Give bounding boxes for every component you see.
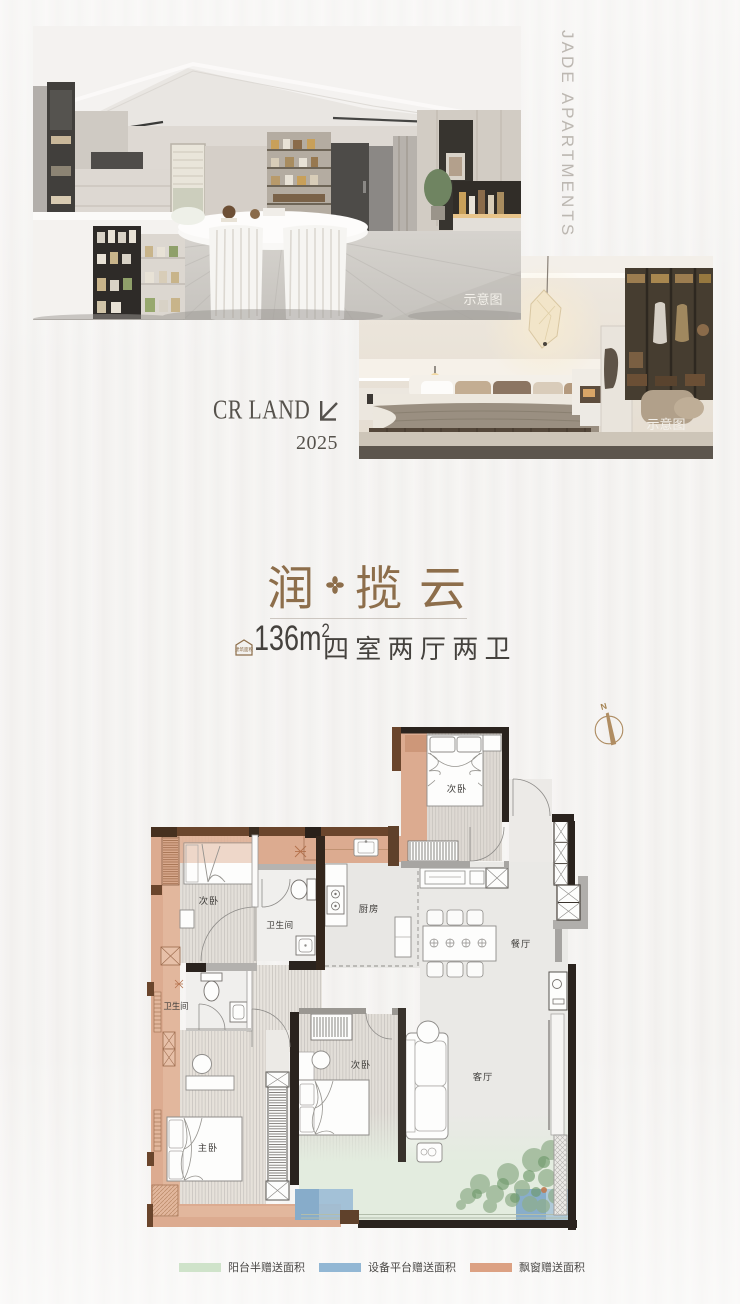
svg-text:客厅: 客厅: [473, 1071, 494, 1082]
svg-text:主卧: 主卧: [198, 1142, 219, 1153]
svg-text:次卧: 次卧: [447, 783, 468, 794]
svg-text:次卧: 次卧: [199, 895, 220, 906]
svg-text:厨房: 厨房: [359, 903, 380, 914]
svg-text:卫生间: 卫生间: [164, 1001, 189, 1011]
svg-text:N: N: [599, 701, 608, 712]
svg-text:卫生间: 卫生间: [266, 919, 293, 930]
svg-text:次卧: 次卧: [351, 1059, 372, 1070]
svg-text:示意图: 示意图: [646, 417, 685, 432]
svg-text:餐厅: 餐厅: [511, 938, 532, 949]
svg-text:建筑面积: 建筑面积: [235, 646, 253, 653]
svg-text:示意图: 示意图: [463, 292, 502, 307]
